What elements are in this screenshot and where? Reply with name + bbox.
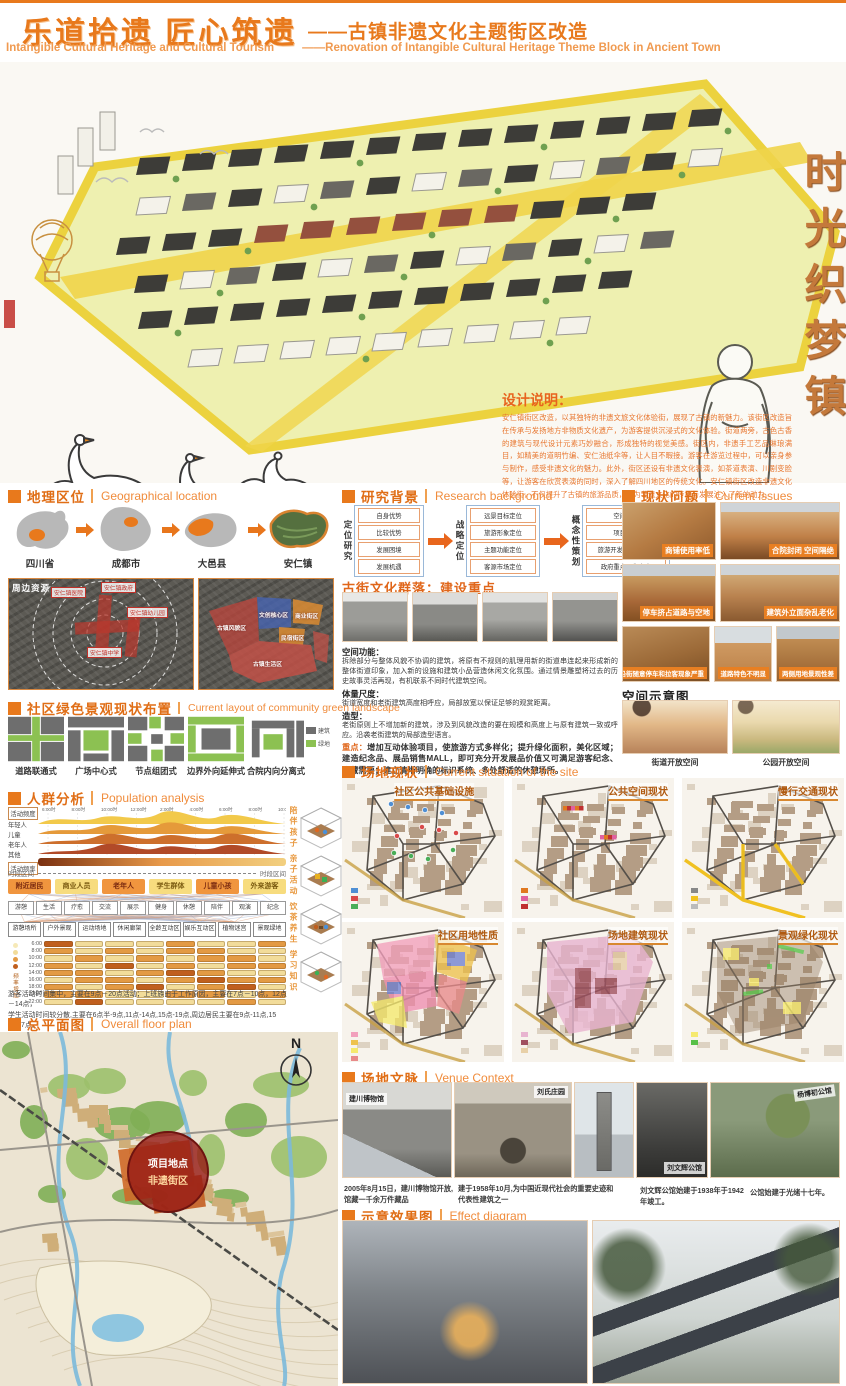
satellite-overlay: [9, 579, 194, 690]
green-diagram-road: 道路联通式: [8, 716, 64, 777]
gantt-cell: [166, 955, 195, 961]
issue-photo-3: 停车挤占道路与空地: [622, 564, 716, 622]
site-map-public-space: 公共空间现状: [512, 778, 674, 918]
effect-render-street: [342, 1220, 588, 1384]
site-map-buildings: 场地建筑现状: [512, 922, 674, 1062]
map-chengdu: 成都市: [94, 504, 158, 570]
gantt-time-label: 10:00: [22, 955, 42, 961]
sichuan-map: [95, 504, 157, 554]
gantt-cell: [166, 977, 195, 983]
zones-overlay: [199, 579, 334, 690]
group-box: 附近居民: [8, 879, 51, 894]
cube-column: 陪伴孩子 亲子活动 饮茶养生 学习知识: [288, 806, 346, 994]
flow-col2: 远景目标定位 旅游形象定位 主题功能定位 客源市场定位: [466, 505, 540, 577]
geo-title-en: Geographical location: [91, 489, 217, 503]
gantt-cell: [227, 977, 256, 983]
group-row: 附近居民 商业人员 老年人 学生群体 儿童小孩 外来游客: [8, 879, 286, 894]
top-accent-line: [0, 0, 846, 3]
gantt-cell: [136, 955, 165, 961]
activity-row: 游憩 生活 疗愈 交流 展示 健身 休憩 陪伴 观演 纪念: [8, 901, 286, 915]
gantt-cell: [75, 948, 104, 954]
cube-study: 学习知识: [288, 950, 346, 994]
gantt-cell: [227, 970, 256, 976]
effect-render-houses: [592, 1220, 840, 1384]
legend-swatch-green: [306, 740, 316, 747]
site-title-en: Current situation of the site: [425, 765, 578, 779]
map-anren: 安仁镇: [266, 504, 330, 570]
svg-text:10:00时: 10:00时: [278, 806, 286, 812]
arrow-icon: [428, 538, 444, 545]
street-photo-2: [412, 592, 478, 642]
street-photo-3: [482, 592, 548, 642]
flow-col3-title: 概念性策划: [570, 509, 582, 573]
calligraphy-motto: 时光织梦镇: [792, 150, 846, 490]
project-site-marker: [128, 1132, 208, 1212]
gantt-cell: [105, 955, 134, 961]
space-caption-park: 公园开放空间: [732, 757, 840, 768]
satellite-map-zones: 古镇风貌区 文创核心区 商业街区 民宿街区 古镇生活区: [198, 578, 334, 690]
issue-photo-2: 合院封闭 空间隔绝: [720, 502, 840, 560]
zone-label: 民宿街区: [281, 633, 304, 642]
gantt-cell: [258, 977, 287, 983]
gantt-cell: [227, 963, 256, 969]
green-diagram-border: 边界外向延伸式: [188, 716, 244, 777]
section-plan: 总平面图 Overall floor plan: [8, 1014, 192, 1034]
gantt-cell: [258, 955, 287, 961]
gantt-cell: [197, 963, 226, 969]
plan-title-cn: 总平面图: [27, 1014, 85, 1034]
site-map-greenery: 景观绿化现状: [682, 922, 844, 1062]
marker-label-1: 项目地点: [148, 1157, 188, 1170]
gantt-cell: [197, 955, 226, 961]
group-box: 商业人员: [55, 879, 98, 894]
map-sichuan: 四川省: [8, 504, 72, 570]
china-map: [9, 504, 71, 554]
gantt-cell: [258, 963, 287, 969]
section-marker-icon: [8, 490, 21, 503]
issue-photo-6: 道路特色不明显: [714, 626, 772, 682]
design-notes: 设计说明： 安仁镇街区改造，以其独特的非遗文旅文化体验街，展现了古镇的新魅力。该…: [502, 390, 792, 501]
poster-title-en: Intangible Cultural Heritage and Cultura…: [6, 42, 274, 54]
gantt-cell: [166, 963, 195, 969]
gantt-time-label: 8:00: [22, 948, 42, 954]
issue-photo-4: 建筑外立面杂乱老化: [720, 564, 840, 622]
anren-satellite: [265, 504, 331, 554]
group-box: 学生群体: [149, 879, 192, 894]
gantt-cell: [75, 970, 104, 976]
gantt-cell: [136, 970, 165, 976]
research-title-en: Research background: [425, 489, 552, 503]
ridge-row-labels: 活动频度 年轻人 儿童 老年人 其他 活动频率: [8, 806, 38, 876]
issue-photo-5: 沿街随意停车和拉客现象严重: [622, 626, 710, 682]
group-box: 老年人: [102, 879, 145, 894]
geo-map-row: 四川省 成都市 大邑县 安仁镇: [8, 504, 334, 570]
venue-photo-courtyard: 杨博初公馆: [710, 1082, 840, 1178]
gantt-row: 6:00: [22, 941, 286, 947]
gantt-cell: [105, 963, 134, 969]
chengdu-map: [181, 504, 243, 554]
svg-text:6:00时: 6:00时: [42, 806, 56, 812]
cube-family: 亲子活动: [288, 854, 346, 898]
svg-text:10:00时: 10:00时: [101, 806, 117, 812]
legend-dot: [13, 964, 18, 969]
zone-label: 商业街区: [295, 611, 318, 620]
venue-caption-2: 建于1958年10月,为中国近现代社会的重要史迹和代表性建筑之一: [458, 1184, 618, 1206]
legend-swatch-building: [306, 727, 316, 734]
poi-label: 安仁镇幼儿园: [127, 607, 168, 618]
venue-photo-clocktower: [574, 1082, 634, 1178]
legend-dot: [13, 957, 18, 962]
section-population: 人群分析 Population analysis: [8, 788, 204, 808]
poi-label: 安仁镇中学: [87, 647, 122, 658]
red-seal: [4, 300, 15, 328]
issues-title-en: Current issues: [705, 489, 792, 503]
section-marker-icon: [342, 490, 355, 503]
section-marker-icon: [8, 702, 21, 715]
marker-label-2: 非遗街区: [148, 1174, 188, 1187]
svg-text:N: N: [291, 1035, 301, 1051]
zone-label: 古镇风貌区: [217, 623, 246, 632]
gantt-row: 10:00: [22, 955, 286, 961]
green-diagram-row: 道路联通式 广场中心式 节点组团式 边界外向延伸式 合院内向分离式: [8, 716, 304, 777]
cube-accompany: 陪伴孩子: [288, 806, 346, 850]
master-plan-map: 项目地点 非遗街区 N: [0, 1032, 338, 1386]
svg-text:2:00时: 2:00时: [160, 806, 174, 812]
gantt-cell: [197, 970, 226, 976]
venue-caption-4: 刘文辉公馆始建于1938年于1942年竣工。: [640, 1186, 744, 1208]
gantt-cell: [136, 948, 165, 954]
gantt-cell: [166, 970, 195, 976]
gantt-time-label: 6:00: [22, 941, 42, 947]
gantt-cell: [197, 948, 226, 954]
poi-label: 安仁镇医院: [51, 587, 86, 598]
poster: 乐道拾遗 匠心筑遗 ——古镇非遗文化主题街区改造 Intangible Cult…: [0, 0, 846, 1386]
venue-photo-museum: 建川博物馆: [342, 1082, 452, 1178]
gantt-cell: [258, 941, 287, 947]
plan-title-en: Overall floor plan: [91, 1017, 192, 1031]
venue-caption-1: 2005年8月15日，建川博物馆开放,馆藏一千余万件藏品: [344, 1184, 454, 1206]
satellite-map-surroundings: 周边资源 安仁镇医院 安仁镇政府 安仁镇幼儿园 安仁镇中学: [8, 578, 194, 690]
issue-photo-1: 商铺使用率低: [622, 502, 716, 560]
arrow-icon: [248, 527, 258, 533]
venue-row: 游憩场所 户外景观 运动场地 休闲廊架 全龄互动区 娱乐互动区 植物迷宫 景观绿…: [8, 922, 286, 937]
gantt-cell: [105, 977, 134, 983]
space-render-park: [732, 700, 840, 754]
surroundings-tag: 周边资源: [12, 582, 50, 594]
svg-text:8:00时: 8:00时: [72, 806, 86, 812]
space-render-street: [622, 700, 728, 754]
legend-dot: [13, 950, 18, 955]
poster-title-en-row: Intangible Cultural Heritage and Cultura…: [6, 42, 840, 54]
activity-ridge-chart: 活动频度 年轻人 儿童 老年人 其他 活动频率 6:00时8:00时10:00时…: [8, 806, 286, 876]
street-p1-text: 拆除部分与整体风貌不协调的建筑，将原有不规则的肌理用新的街道串连起来形成新的整体…: [342, 656, 618, 686]
zone-label: 文创核心区: [259, 610, 288, 619]
poster-subtitle-en: ——Renovation of Intangible Cultural Heri…: [302, 42, 721, 54]
gantt-cell: [44, 970, 73, 976]
green-diagram-plaza: 广场中心式: [68, 716, 124, 777]
gantt-cell: [44, 948, 73, 954]
gantt-row: 16:00: [22, 977, 286, 983]
gantt-cell: [44, 955, 73, 961]
interval-line: 时段区间 时段区间: [8, 868, 286, 878]
group-box: 外来游客: [243, 879, 286, 894]
site-map-slow-traffic: 慢行交通现状: [682, 778, 844, 918]
gantt-cell: [166, 941, 195, 947]
cube-tea: 饮茶养生: [288, 902, 346, 946]
arrow-icon: [76, 527, 86, 533]
arrow-icon: [544, 538, 560, 545]
gantt-cell: [136, 977, 165, 983]
design-notes-title: 设计说明：: [502, 390, 792, 410]
flow-col1: 自身优势 比较优势 发展困境 发展机遇: [354, 505, 424, 577]
gantt-row: 8:00: [22, 948, 286, 954]
map-dayi: 大邑县: [180, 504, 244, 570]
street-p2-text: 街道宽度和老街建筑高度相呼应，局部放宽以保证足够的观赏距离。: [342, 698, 618, 708]
venue-photo-manor: 刘氏庄园: [454, 1082, 572, 1178]
poster-subtitle-cn: ——古镇非遗文化主题街区改造: [308, 17, 588, 44]
population-title-en: Population analysis: [91, 791, 204, 805]
gantt-cell: [75, 955, 104, 961]
svg-text:6:00时: 6:00时: [219, 806, 233, 812]
legend-dot: [13, 943, 18, 948]
svg-text:4:00时: 4:00时: [190, 806, 204, 812]
gantt-cell: [136, 941, 165, 947]
gantt-time-label: 14:00: [22, 970, 42, 976]
issue-photo-7: 两侧用地景观性差: [776, 626, 840, 682]
venue-caption-5: 公馆始建于光绪十七年。: [750, 1188, 844, 1199]
gantt-cell: [75, 977, 104, 983]
gantt-row: 12:00: [22, 963, 286, 969]
svg-text:8:00时: 8:00时: [249, 806, 263, 812]
dashed-line: [38, 873, 256, 874]
gantt-cell: [44, 963, 73, 969]
section-marker-icon: [8, 792, 21, 805]
arrow-icon: [162, 527, 172, 533]
poi-label: 安仁镇政府: [101, 582, 136, 593]
gantt-cell: [44, 941, 73, 947]
green-diagram-courtyard: 合院内向分离式: [248, 716, 304, 777]
street-p3-text: 老街原则上不增加新的建筑，涉及到风貌改造的要在规模和高度上与原有建筑一致或呼应。…: [342, 720, 618, 740]
gantt-row: 14:00: [22, 970, 286, 976]
site-map-facilities: 社区公共基础设施: [342, 778, 504, 918]
clocktower-shape: [597, 1092, 612, 1171]
geo-title-cn: 地理区位: [27, 486, 85, 506]
ridge-svg: 6:00时8:00时10:00时12:00时2:00时4:00时6:00时8:0…: [38, 806, 286, 868]
site-map-landuse: 社区用地性质: [342, 922, 504, 1062]
gantt-cell: [258, 970, 287, 976]
gantt-cell: [227, 955, 256, 961]
gantt-cell: [258, 948, 287, 954]
section-geo: 地理区位 Geographical location: [8, 486, 217, 506]
green-legend: 建筑 绿地: [306, 726, 330, 748]
gantt-cell: [75, 963, 104, 969]
gantt-cell: [105, 970, 134, 976]
green-diagram-node: 节点组团式: [128, 716, 184, 777]
green-title-cn: 社区绿色景观现状布置: [27, 698, 172, 718]
section-marker-icon: [8, 1018, 21, 1031]
space-caption-street: 街道开放空间: [622, 757, 728, 768]
flow-col2-title: 战略定位: [454, 509, 466, 573]
gantt-cell: [75, 941, 104, 947]
gantt-cell: [227, 941, 256, 947]
research-flow-diagram: 定位研究 自身优势 比较优势 发展困境 发展机遇 战略定位 远景目标定位 旅游形…: [342, 502, 618, 580]
gantt-cell: [44, 977, 73, 983]
gantt-time-label: 16:00: [22, 977, 42, 983]
gantt-cell: [105, 941, 134, 947]
street-photo-1: [342, 592, 408, 642]
gantt-cell: [105, 948, 134, 954]
ridge-ticks: 6:00时8:00时10:00时12:00时2:00时4:00时6:00时8:0…: [42, 806, 286, 812]
flow-col1-title: 定位研究: [342, 509, 354, 573]
gantt-cell: [227, 948, 256, 954]
gantt-time-label: 12:00: [22, 963, 42, 969]
population-title-cn: 人群分析: [27, 788, 85, 808]
street-photo-4: [552, 592, 618, 642]
group-box: 儿童小孩: [196, 879, 239, 894]
venue-photo-mansion: 刘文辉公馆: [636, 1082, 708, 1178]
svg-text:12:00时: 12:00时: [131, 806, 147, 812]
gantt-cell: [166, 948, 195, 954]
gantt-cell: [136, 963, 165, 969]
zone-label: 古镇生活区: [253, 659, 282, 668]
section-marker-icon: [342, 766, 355, 779]
gantt-cell: [197, 977, 226, 983]
gantt-cell: [197, 941, 226, 947]
section-marker-icon: [622, 490, 635, 503]
